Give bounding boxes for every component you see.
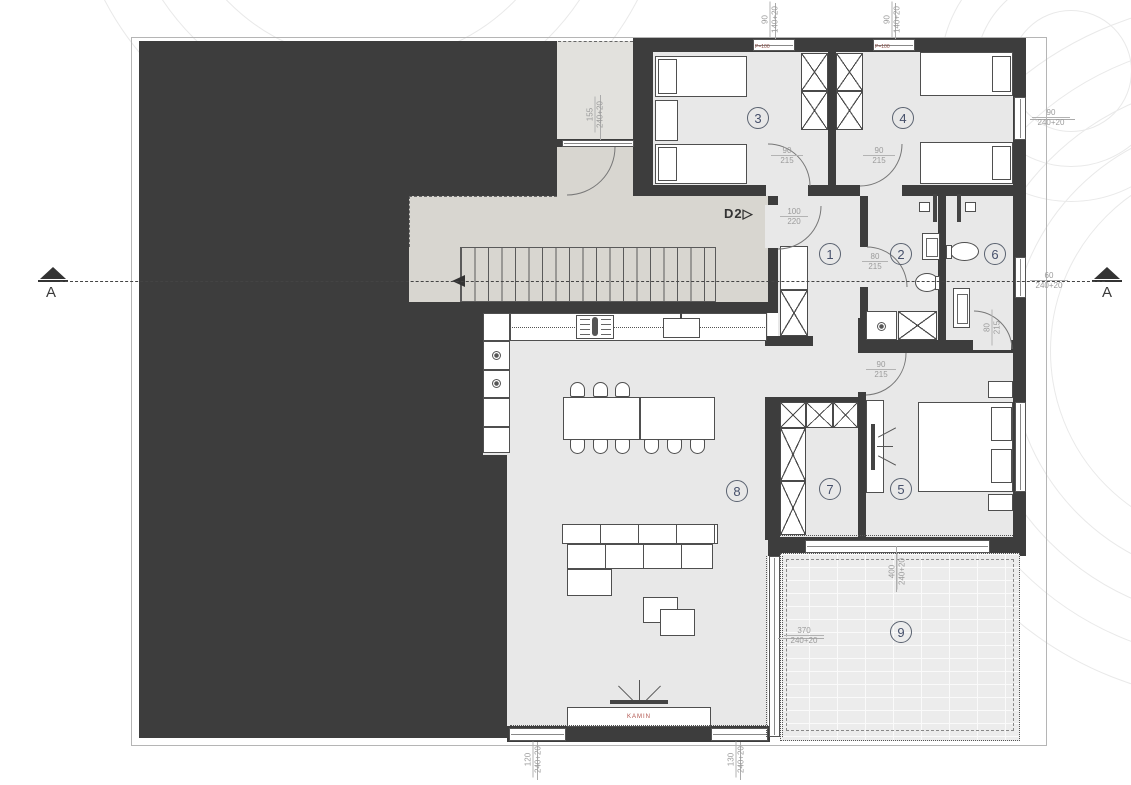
window-living-right: [711, 728, 768, 741]
roof-area: [139, 196, 409, 313]
dashed-entry-edge: [558, 41, 633, 42]
dim-value: 140+20: [771, 2, 780, 38]
room-number-4: 4: [892, 107, 914, 129]
dim-door-wc: 80215: [983, 310, 1002, 346]
kitchen-cabinet: [483, 427, 510, 453]
hall-wall-stub: [765, 336, 813, 346]
bath-wc-wall: [938, 313, 946, 340]
room-number-9: 9: [890, 621, 912, 643]
kitchen-top-wall: [409, 302, 780, 313]
room-number-2: 2: [890, 243, 912, 265]
dotted-window-line: [766, 556, 767, 737]
room-number-8: 8: [726, 480, 748, 502]
closet-wardrobe: [780, 402, 806, 428]
sofa-chaise: [567, 569, 612, 596]
window-living-left: [509, 728, 566, 741]
nightstand: [655, 100, 678, 141]
dim-door-d2: 100220: [780, 207, 808, 226]
radiator-icon: [965, 202, 976, 212]
kitchen-cabinet: [483, 398, 510, 427]
dim-value: 220: [780, 217, 808, 226]
dim-value: 400: [888, 554, 898, 590]
dim-window-top-2: 90140+20: [883, 2, 902, 38]
pillow: [992, 56, 1011, 92]
section-marker-icon: [40, 267, 66, 279]
chair: [615, 439, 630, 454]
section-label-right: A: [1102, 284, 1112, 301]
dim-value: 90: [883, 2, 893, 38]
nightstand: [988, 494, 1013, 511]
dim-window-entry: 155240+20: [586, 97, 605, 133]
dim-value: 100: [780, 207, 808, 217]
wardrobe: [801, 91, 828, 130]
toilet-tank: [946, 245, 952, 259]
dining-table: [640, 397, 715, 440]
dim-door-room4: 90215: [863, 146, 895, 165]
room-number-6: 6: [984, 243, 1006, 265]
pillow: [992, 146, 1011, 180]
coffee-table: [660, 609, 695, 636]
nightstand: [988, 381, 1013, 398]
sofa-back: [562, 524, 718, 544]
section-marker-icon: [1094, 267, 1120, 279]
dim-value: 130: [727, 742, 737, 778]
dim-window-bottom-right: 130240+20: [727, 742, 746, 778]
dim-value: 240+20: [1032, 118, 1070, 127]
stove-handle: [592, 317, 598, 336]
sink-basin: [957, 294, 968, 324]
chair: [644, 439, 659, 454]
sink-basin: [926, 238, 938, 257]
dim-value: 215: [866, 370, 896, 379]
tv-above-fireplace: [610, 700, 668, 704]
dim-value: 60: [1030, 271, 1068, 281]
shower-drain-icon: [877, 322, 886, 331]
dim-value: 155: [586, 97, 596, 133]
closet-wardrobe: [833, 402, 858, 428]
dashed-stairhall-edge: [409, 196, 410, 247]
dim-value: 240+20: [898, 554, 907, 590]
pillow: [991, 449, 1012, 483]
toilet: [950, 242, 979, 261]
closet-wardrobe: [780, 428, 806, 481]
room-number-7: 7: [819, 478, 841, 500]
dim-door-room5: 90215: [866, 360, 896, 379]
closet-bedroom-wall: [858, 405, 866, 493]
chair: [667, 439, 682, 454]
passage-wall: [858, 318, 866, 353]
chair: [690, 439, 705, 454]
dim-value: 215: [993, 310, 1002, 346]
room-number-1: 1: [819, 243, 841, 265]
pillow: [991, 407, 1012, 441]
passage: [765, 345, 858, 397]
roof-area: [139, 41, 557, 196]
dim-window-bottom-left: 120240+20: [524, 742, 543, 778]
window-room6-right: [1015, 257, 1026, 298]
window-room4-right: [1014, 97, 1026, 140]
kitchen-sink: [663, 318, 700, 338]
closet-wardrobe: [806, 402, 833, 428]
dim-terrace-door: 370240+20: [784, 626, 824, 645]
dashed-stairhall-edge: [409, 196, 557, 197]
radiator-icon: [957, 194, 961, 222]
counter-dashed-line: [512, 327, 765, 328]
tv-ray: [877, 446, 893, 447]
dim-value: 90: [866, 360, 896, 370]
door-tag-d2: D2▷: [724, 206, 754, 222]
living-closet-wall: [765, 397, 780, 540]
dim-value: 240+20: [596, 97, 605, 133]
hall-passage-opening: [813, 337, 858, 346]
dotted-window-line: [782, 556, 783, 737]
wardrobe: [836, 91, 863, 130]
dim-value: 215: [863, 156, 895, 165]
dim-value: 90: [771, 146, 803, 156]
chair: [593, 439, 608, 454]
hall-cabinet: [780, 246, 808, 290]
dim-value: 90: [863, 146, 895, 156]
dotted-window-line: [510, 725, 768, 726]
dim-window-room4-right: 90240+20: [1032, 108, 1070, 127]
toilet-tank: [935, 276, 940, 290]
room-number-5: 5: [890, 478, 912, 500]
radiator-icon: [933, 194, 937, 222]
radiator-icon: [919, 202, 930, 212]
chair: [570, 382, 585, 397]
dim-value: 90: [1032, 108, 1070, 118]
sliding-door-terrace: [805, 540, 990, 553]
dim-value: 80: [983, 310, 993, 346]
chair: [593, 382, 608, 397]
chair: [615, 382, 630, 397]
dim-window-top-1: 90140+20: [761, 2, 780, 38]
dim-door-bath: 80215: [862, 252, 888, 271]
door-arc-entry: [565, 145, 619, 199]
section-label-left: A: [46, 284, 56, 301]
pillow: [658, 59, 677, 94]
dotted-window-line: [780, 535, 1013, 536]
sofa-seat: [567, 544, 713, 569]
dim-value: 240+20: [784, 636, 824, 645]
chair: [570, 439, 585, 454]
dim-value: 240+20: [1030, 281, 1068, 290]
dim-value: 370: [784, 626, 824, 636]
kitchen-cabinet: [483, 313, 510, 341]
dim-value: 215: [771, 156, 803, 165]
dim-terrace-width: 400240+20: [888, 554, 907, 590]
dining-table: [563, 397, 640, 440]
dim-value: 215: [862, 262, 888, 271]
parapet-label: P=100: [755, 44, 770, 50]
wardrobe: [801, 53, 828, 91]
pillow: [658, 147, 677, 181]
room-number-3: 3: [747, 107, 769, 129]
door-tag-arrow-icon: ▷: [743, 206, 754, 221]
hob-burner-icon: [492, 351, 501, 360]
dim-value: 80: [862, 252, 888, 262]
dim-value: 240+20: [534, 742, 543, 778]
tv-ray: [639, 680, 640, 700]
section-line: [60, 281, 1105, 282]
dim-value: 120: [524, 742, 534, 778]
window-living-terrace: [769, 556, 780, 737]
staircase: [460, 247, 716, 302]
dim-value: 240+20: [737, 742, 746, 778]
door-tag-text: D2: [724, 206, 743, 221]
dim-window-room6-right: 60240+20: [1030, 271, 1068, 290]
faucet-icon: [680, 313, 682, 319]
washing-machine: [898, 311, 937, 340]
roof-area: [139, 455, 507, 738]
hob-burner-icon: [492, 379, 501, 388]
tv-icon: [871, 424, 875, 470]
dim-value: 90: [761, 2, 771, 38]
roof-area: [139, 313, 483, 455]
dim-door-room3: 90215: [771, 146, 803, 165]
right-exterior-wall: [1013, 313, 1026, 340]
parapet-label: P=100: [875, 44, 890, 50]
fireplace-label: KAMIN: [567, 714, 711, 720]
wardrobe: [836, 53, 863, 91]
closet-wardrobe: [780, 481, 806, 535]
dim-value: 140+20: [893, 2, 902, 38]
hall-wardrobe: [780, 290, 808, 336]
window-room5-right: [1015, 402, 1026, 492]
